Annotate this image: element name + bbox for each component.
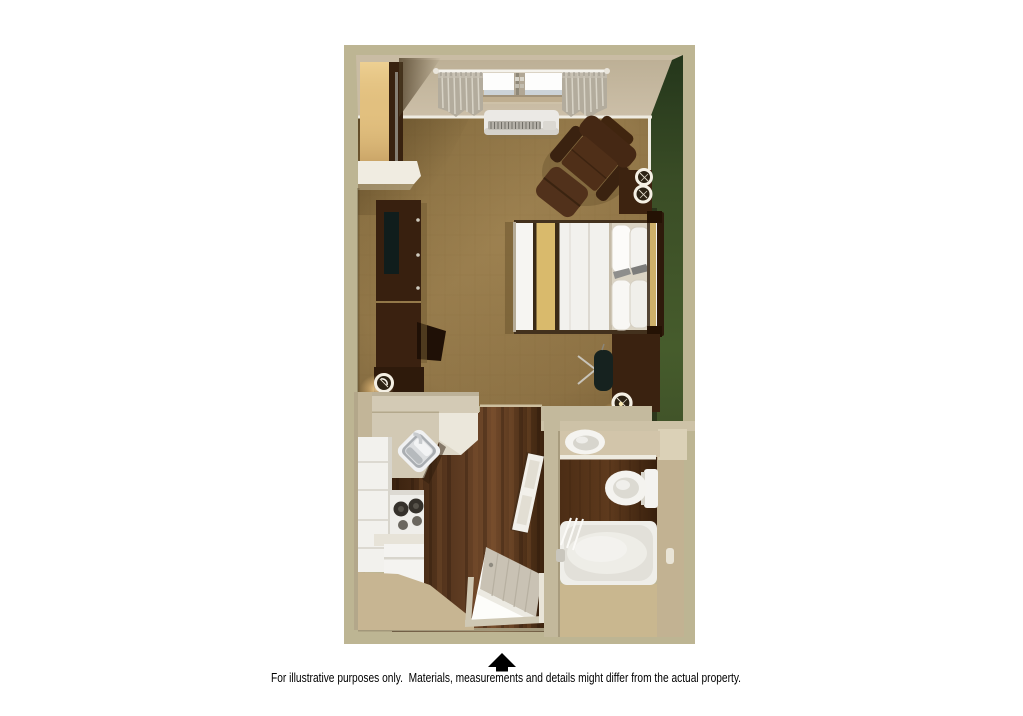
svg-text:For illustrative purposes only: For illustrative purposes only. Material…	[271, 670, 741, 685]
